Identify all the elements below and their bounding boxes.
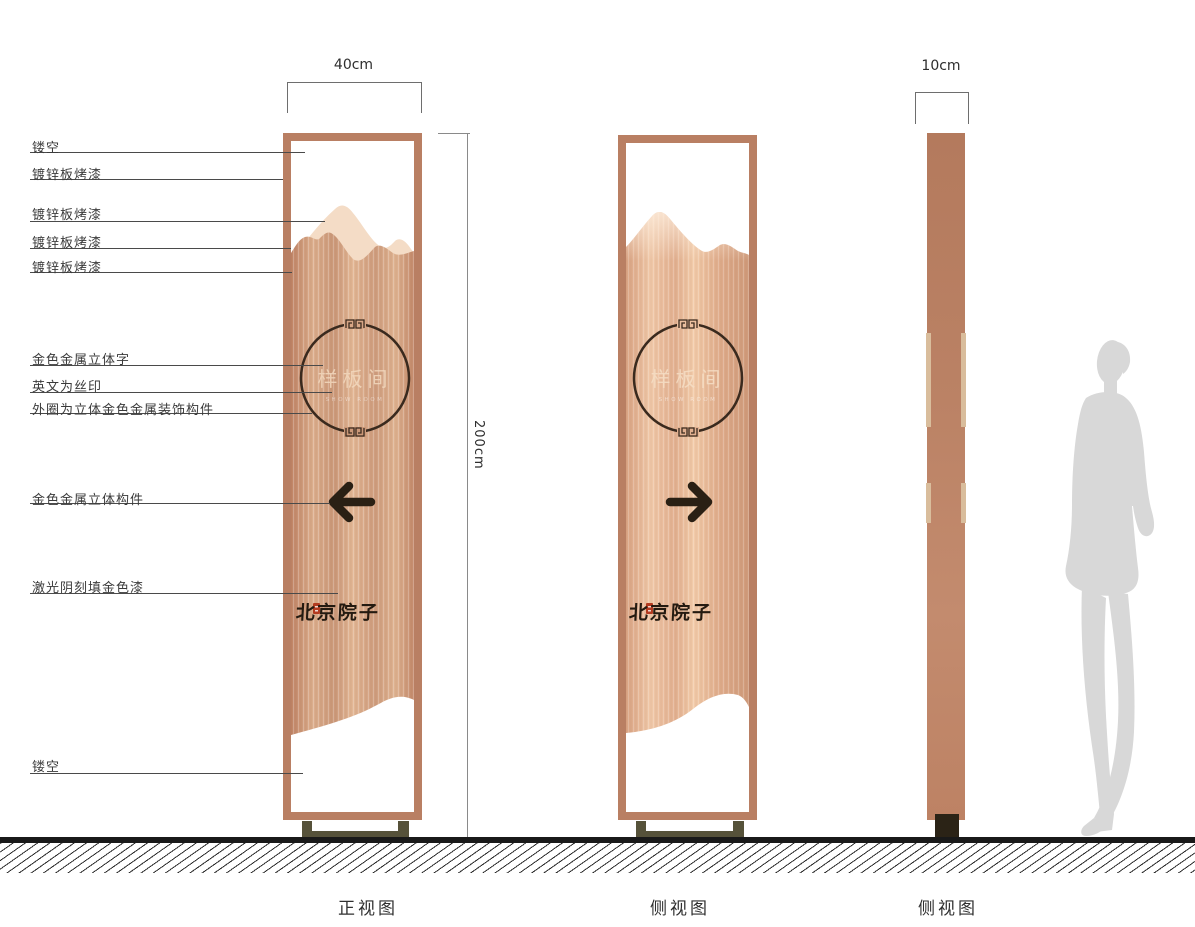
dim-front-width: 40cm xyxy=(287,57,420,73)
callout-galvanized-2: 镀锌板烤漆 xyxy=(32,204,102,223)
leader-line xyxy=(30,152,305,153)
dim-side-width: 10cm xyxy=(915,58,967,74)
callout-galvanized-1: 镀锌板烤漆 xyxy=(32,164,102,183)
dim-side-width-bracket xyxy=(915,92,969,124)
callout-hollow-bottom: 镂空 xyxy=(32,756,60,775)
side-profile-foot xyxy=(935,814,959,838)
callout-outer-ring: 外圈为立体金色金属装饰构件 xyxy=(32,399,214,418)
callout-english-silkscreen: 英文为丝印 xyxy=(32,376,102,395)
room-name-en-text: SHOW ROOM xyxy=(326,397,385,403)
signage-spec-sheet: 样板间 SHOW ROOM 北京院子 xyxy=(0,0,1195,927)
brand-name-text: 北京院子 xyxy=(628,601,713,624)
callout-galvanized-3: 镀锌板烤漆 xyxy=(32,232,102,251)
human-silhouette xyxy=(1048,336,1168,838)
callout-laser-engraved: 激光阴刻填金色漆 xyxy=(32,577,144,596)
silhouette-neck xyxy=(1104,380,1117,394)
front-view-sign: 样板间 SHOW ROOM 北京院子 xyxy=(283,133,422,820)
side-profile-bar xyxy=(927,133,965,820)
side-tab xyxy=(926,333,931,427)
leader-line xyxy=(30,773,303,774)
callout-gold-component: 金色金属立体构件 xyxy=(32,489,144,508)
side-tab xyxy=(926,483,931,523)
side-view-sign: 样板间 SHOW ROOM 北京院子 xyxy=(618,135,757,820)
side-tab xyxy=(961,483,966,523)
caption-side-view-1: 侧视图 xyxy=(620,894,740,919)
dim-front-width-bracket xyxy=(287,82,422,113)
dim-height-line xyxy=(467,133,468,837)
side-tab xyxy=(961,333,966,427)
brand-name-text: 北京院子 xyxy=(295,601,380,624)
dim-height-tick xyxy=(438,133,470,134)
silhouette-torso xyxy=(1065,392,1154,596)
callout-galvanized-4: 镀锌板烤漆 xyxy=(32,257,102,276)
callout-hollow-top: 镂空 xyxy=(32,137,60,156)
ground-hatch xyxy=(0,843,1195,873)
room-name-text: 样板间 xyxy=(651,367,726,391)
callout-gold-letters: 金色金属立体字 xyxy=(32,349,130,368)
caption-front-view: 正视图 xyxy=(308,894,428,919)
room-name-en-text: SHOW ROOM xyxy=(659,397,718,403)
dim-total-height: 200cm xyxy=(471,420,486,470)
silhouette-leg-left xyxy=(1081,586,1114,814)
room-name-text: 样板间 xyxy=(318,367,393,391)
caption-side-view-2: 侧视图 xyxy=(888,894,1008,919)
